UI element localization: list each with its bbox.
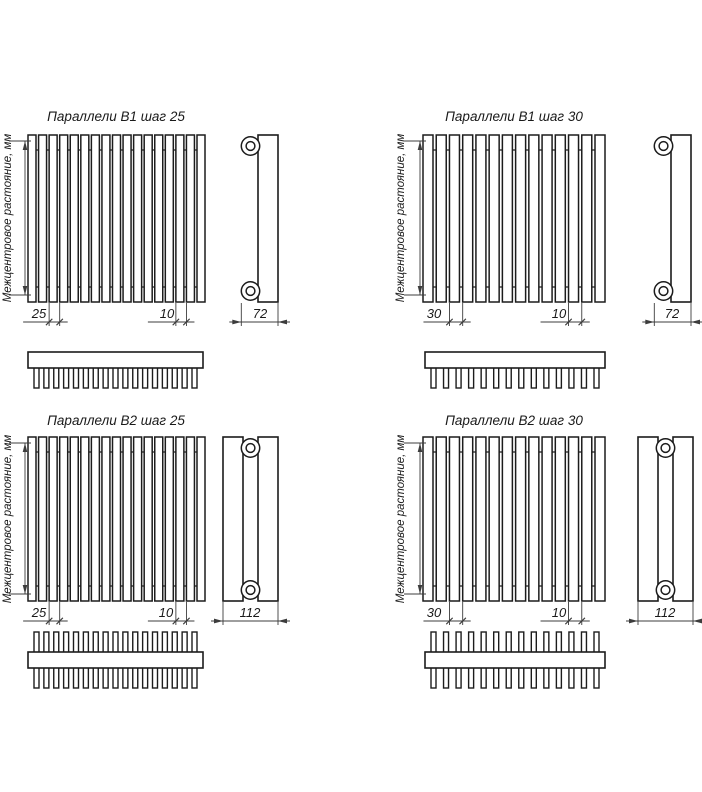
unit-line-art <box>9 437 290 688</box>
unit-title: Параллели В1 шаг 25 <box>47 109 185 124</box>
dim-depth-label: 112 <box>240 605 261 620</box>
radiator-technical-drawings: Параллели В1 шаг 25 Межцентровое растоян… <box>0 0 702 792</box>
dim-tube-width-label: 10 <box>159 605 174 620</box>
drawing-canvas: Параллели В1 шаг 25 Межцентровое растоян… <box>0 0 702 792</box>
center-distance-label: Межцентровое растояние, мм <box>395 134 407 303</box>
dim-step-label: 25 <box>31 605 47 620</box>
dim-step-label: 30 <box>427 605 442 620</box>
dim-tube-width-label: 10 <box>160 306 175 321</box>
dim-depth-label: 72 <box>253 306 268 321</box>
center-distance-label: Межцентровое растояние, мм <box>2 134 14 303</box>
dim-tube-width-label: 10 <box>552 605 567 620</box>
unit-line-art <box>404 135 702 388</box>
unit-line-art <box>9 135 290 388</box>
unit-b1-step25: Параллели В1 шаг 25 Межцентровое растоян… <box>2 109 290 388</box>
unit-b2-step25: Параллели В2 шаг 25 Межцентровое растоян… <box>2 413 290 688</box>
unit-title: Параллели В1 шаг 30 <box>445 109 583 124</box>
unit-b2-step30: Параллели В2 шаг 30 Межцентровое растоян… <box>395 413 702 688</box>
dim-step-label: 30 <box>427 306 442 321</box>
unit-line-art <box>404 437 702 688</box>
dim-step-label: 25 <box>31 306 47 321</box>
dim-depth-label: 72 <box>665 306 680 321</box>
center-distance-label: Межцентровое растояние, мм <box>395 435 407 604</box>
dim-depth-label: 112 <box>655 605 676 620</box>
unit-title: Параллели В2 шаг 30 <box>445 413 583 428</box>
center-distance-label: Межцентровое растояние, мм <box>2 435 14 604</box>
dim-tube-width-label: 10 <box>552 306 567 321</box>
unit-b1-step30: Параллели В1 шаг 30 Межцентровое растоян… <box>395 109 702 388</box>
unit-title: Параллели В2 шаг 25 <box>47 413 185 428</box>
